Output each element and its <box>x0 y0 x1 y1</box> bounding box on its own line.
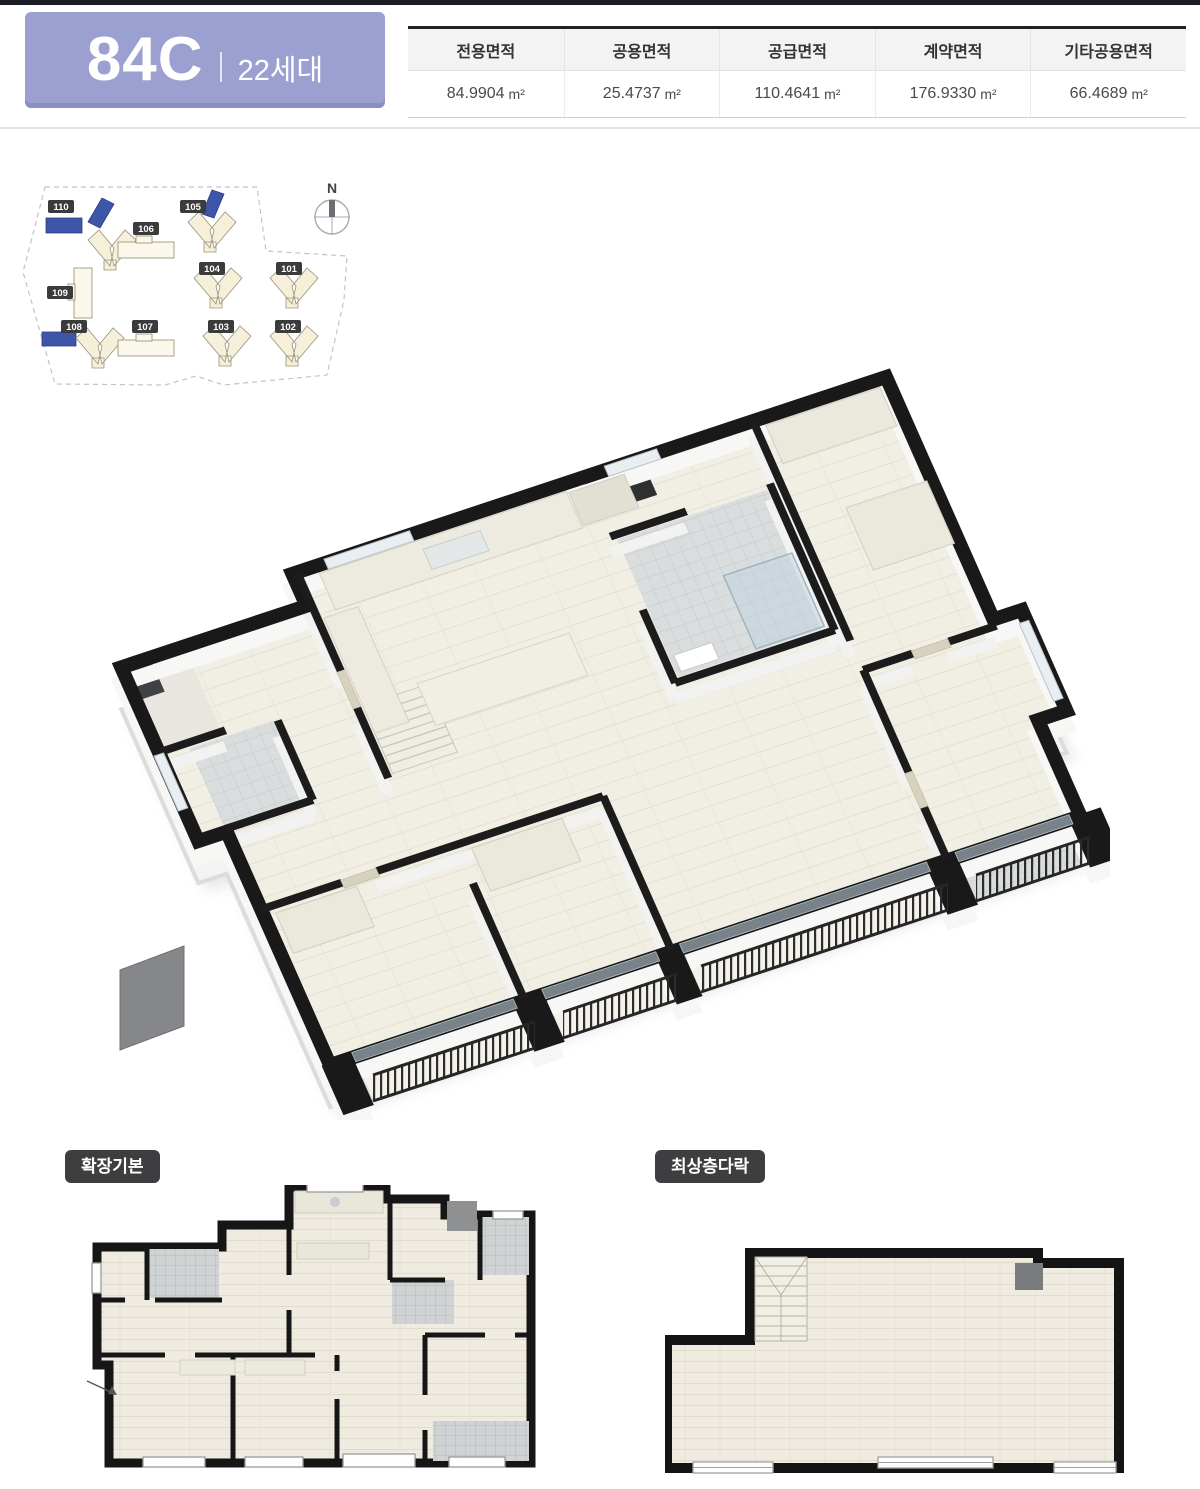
area-number: 84.9904 <box>447 85 505 103</box>
attic-outline <box>667 1253 1119 1468</box>
building-number: 104 <box>204 264 221 275</box>
building-104: 104 <box>194 262 242 308</box>
balcony <box>433 1421 529 1461</box>
area-number: 25.4737 <box>603 85 661 103</box>
area-col-header: 공용면적 <box>564 29 720 71</box>
area-col-header: 전용면적 <box>408 29 564 71</box>
area-unit: m² <box>980 86 996 102</box>
area-unit: m² <box>824 86 840 102</box>
area-number: 110.4641 <box>755 85 821 103</box>
compass-n-label: N <box>327 180 337 196</box>
main-3d-floorplan <box>100 360 1110 1120</box>
floorplan-page: { "header": { "unit_code": "84C", "unit_… <box>0 0 1200 1489</box>
building-number: 109 <box>52 288 68 299</box>
building-number: 101 <box>281 264 298 275</box>
page-top-border <box>0 0 1200 5</box>
area-value: 84.9904m² <box>408 71 564 117</box>
kitchen-sink <box>330 1197 340 1207</box>
area-col-header: 공급면적 <box>719 29 875 71</box>
plan-2d-top-floor-attic <box>665 1240 1165 1489</box>
building-number: 103 <box>213 322 229 333</box>
variant-label-top-floor-attic: 최상층다락 <box>655 1150 765 1183</box>
area-value: 110.4641m² <box>719 71 875 117</box>
building-number: 110 <box>53 202 68 213</box>
building-number: 108 <box>66 322 82 333</box>
building-101: 101 <box>270 262 318 308</box>
area-col-header: 기타공용면적 <box>1030 29 1186 71</box>
closet <box>180 1360 235 1375</box>
staircase <box>755 1257 807 1341</box>
area-value: 176.9330m² <box>875 71 1031 117</box>
utility-room <box>482 1217 529 1275</box>
area-value: 25.4737m² <box>564 71 720 117</box>
building-number: 102 <box>280 322 296 333</box>
unit-type-badge: 84C 22세대 <box>25 12 385 108</box>
area-unit: m² <box>665 86 681 102</box>
unit-household-count: 22세대 <box>238 47 324 89</box>
unit-type-code: 84C <box>87 29 204 91</box>
area-summary-table: 전용면적 공용면적 공급면적 계약면적 기타공용면적 84.9904m² 25.… <box>408 26 1186 118</box>
unit-badge-divider <box>220 52 222 82</box>
bathroom <box>149 1249 219 1298</box>
variant-label-expanded-basic: 확장기본 <box>65 1150 160 1183</box>
kitchen-island <box>297 1243 369 1259</box>
building-number: 105 <box>185 202 202 213</box>
area-number: 66.4689 <box>1070 85 1128 103</box>
building-109: 109 <box>47 268 92 318</box>
building-number: 107 <box>137 322 153 333</box>
building-107: 107 <box>118 320 174 356</box>
entrance-door-panel <box>120 946 184 1050</box>
area-value: 66.4689m² <box>1030 71 1186 117</box>
compass-needle <box>329 200 335 217</box>
bathroom <box>392 1280 454 1324</box>
area-unit: m² <box>1131 86 1147 102</box>
area-col-header: 계약면적 <box>875 29 1031 71</box>
closet <box>245 1360 305 1375</box>
building-105: 105 <box>180 190 236 252</box>
building-110: 110 <box>46 198 136 270</box>
plan-2d-expanded-basic <box>85 1185 585 1489</box>
area-unit: m² <box>509 86 525 102</box>
compass: N <box>314 180 350 235</box>
duct-shaft <box>447 1201 477 1231</box>
area-number: 176.9330 <box>910 85 977 103</box>
header-divider <box>0 127 1200 129</box>
duct-shaft <box>1015 1263 1043 1290</box>
building-number: 106 <box>138 224 154 235</box>
